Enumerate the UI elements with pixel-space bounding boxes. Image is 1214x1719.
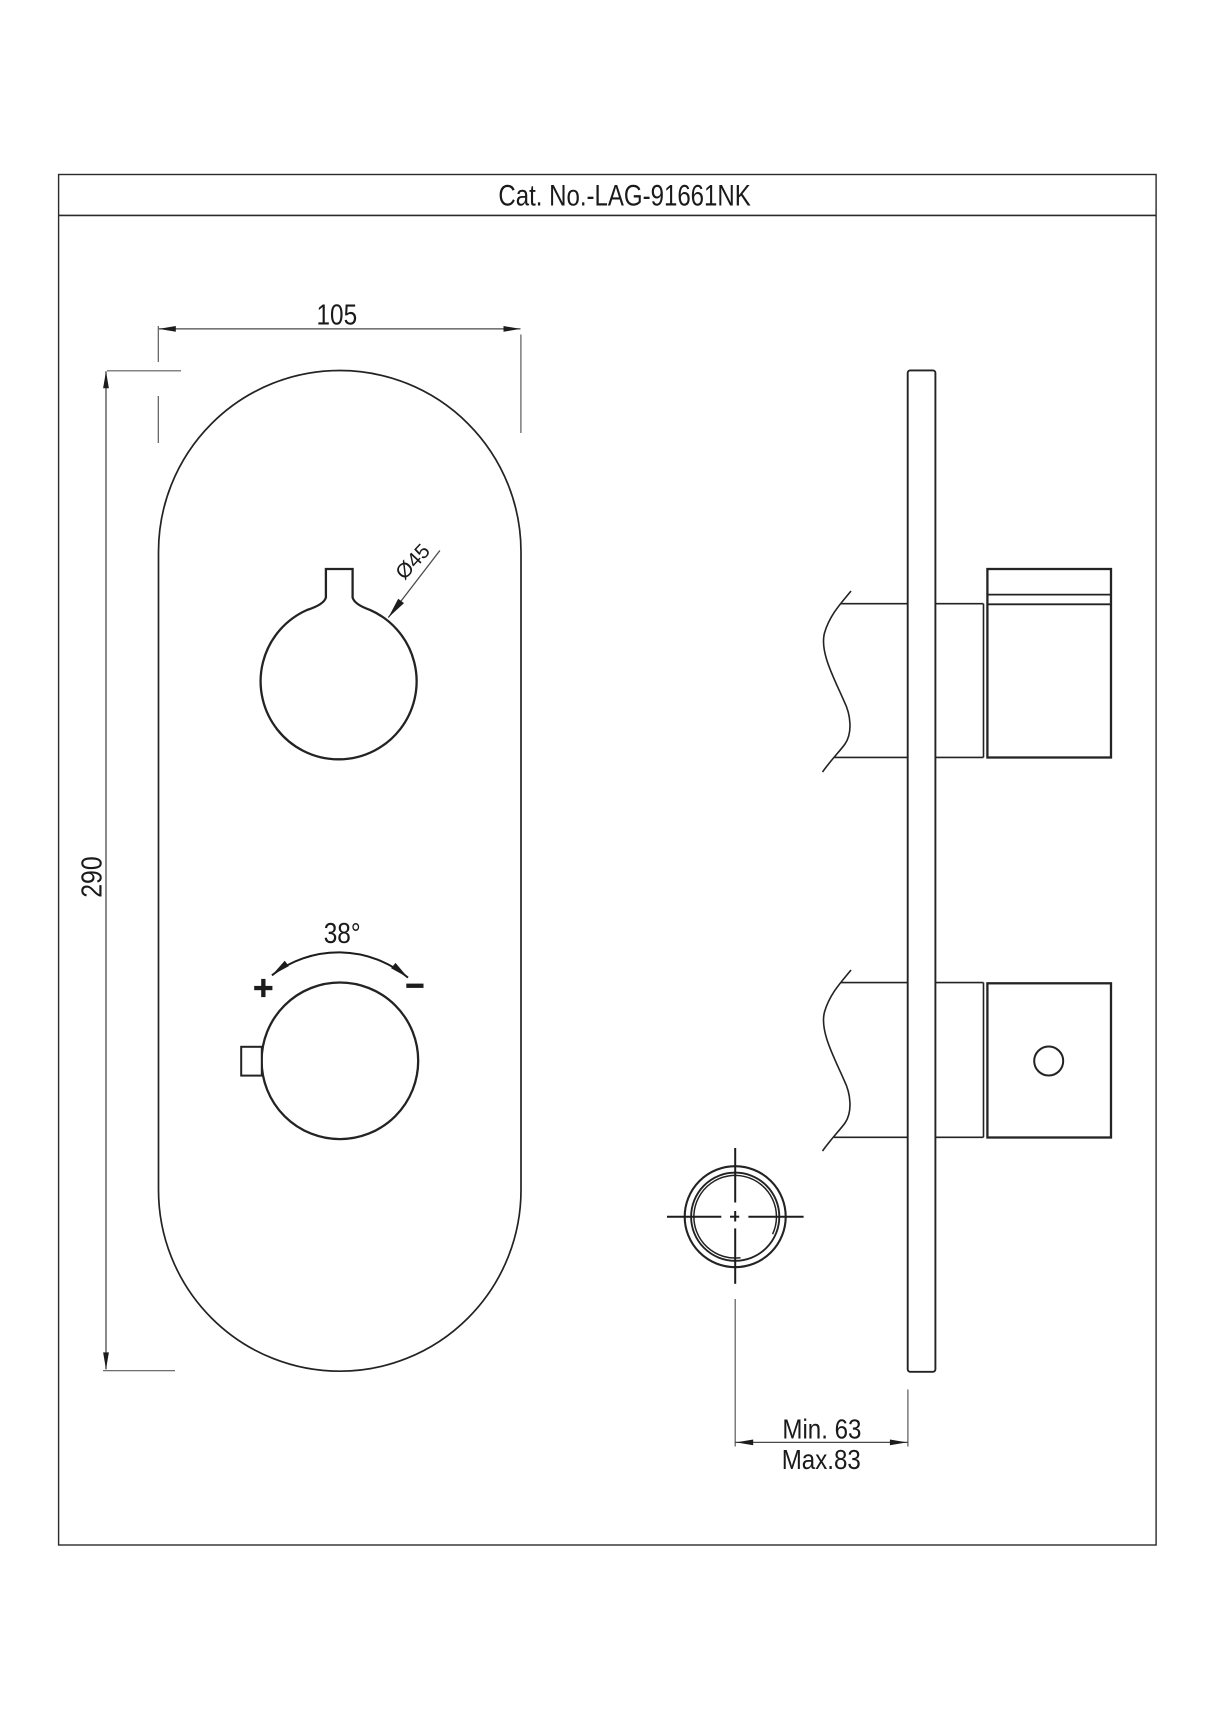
svg-text:38°: 38° — [324, 918, 361, 950]
svg-text:290: 290 — [77, 856, 109, 898]
svg-text:Cat. No.-LAG-91661NK: Cat. No.-LAG-91661NK — [498, 180, 751, 213]
svg-text:Max.83: Max.83 — [782, 1444, 861, 1475]
svg-text:105: 105 — [317, 300, 358, 332]
svg-text:Min. 63: Min. 63 — [782, 1413, 861, 1444]
